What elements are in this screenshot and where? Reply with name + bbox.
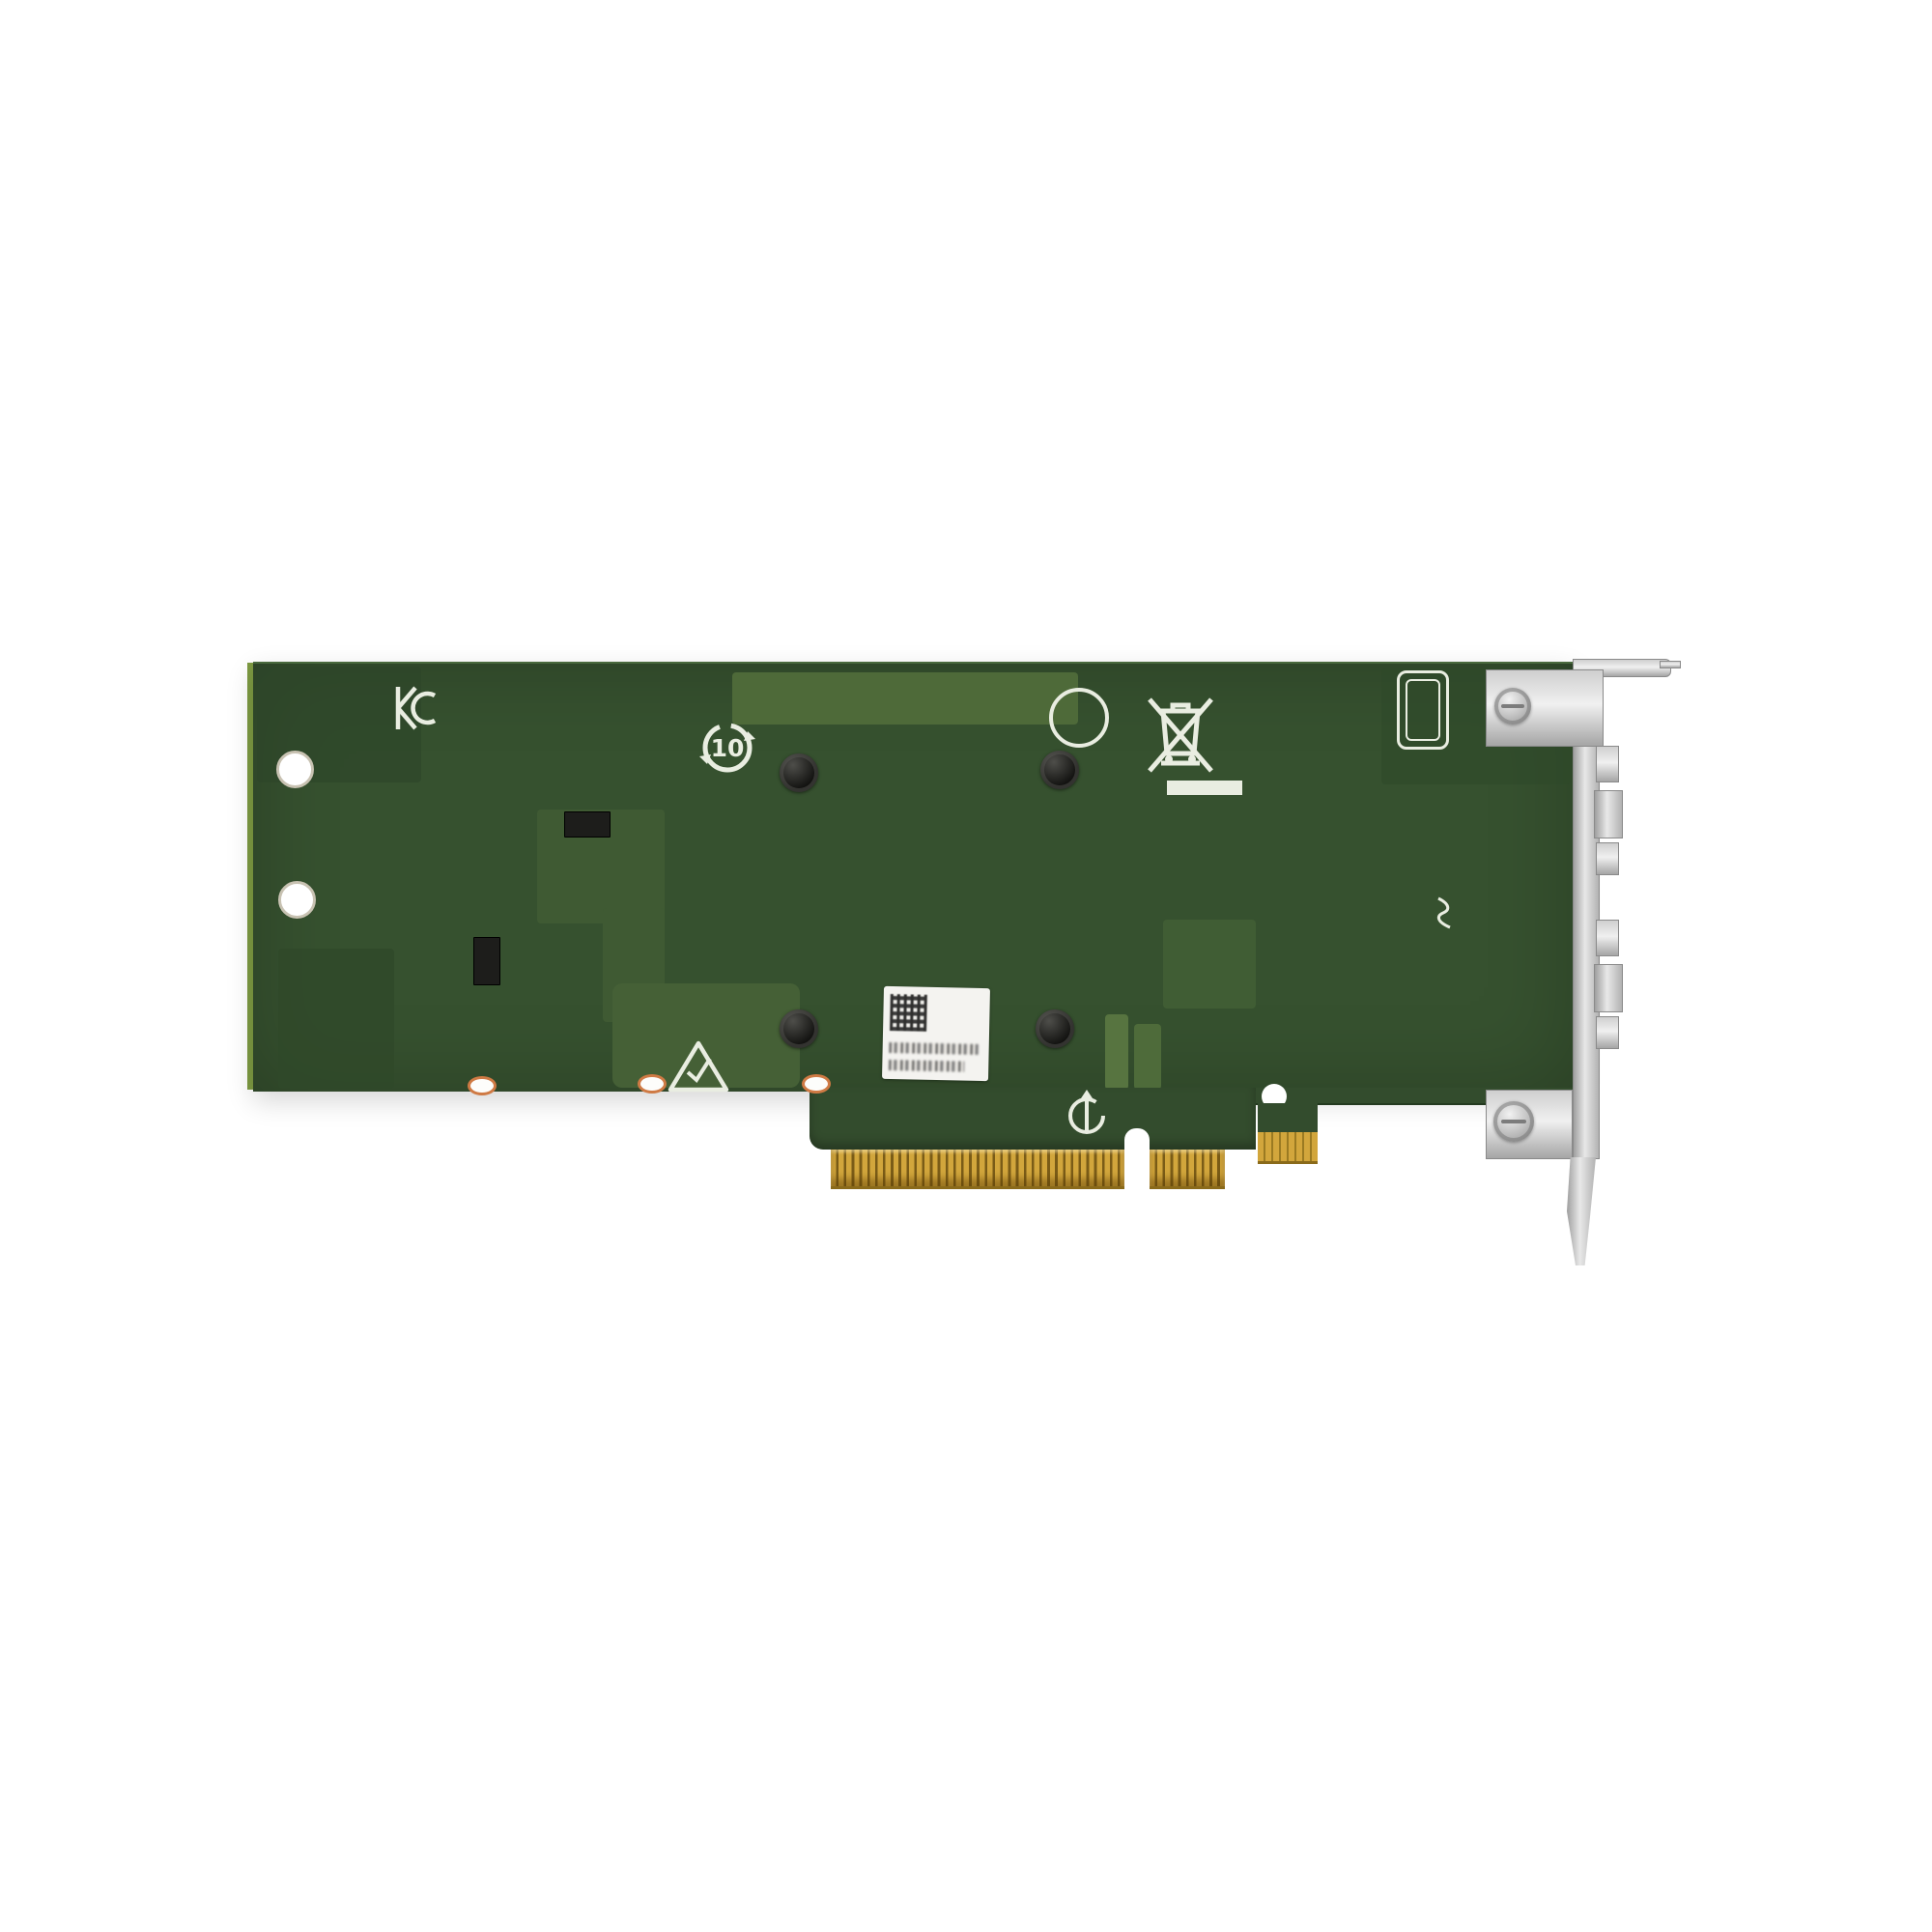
vcci-mark-icon: [1397, 670, 1449, 750]
epup-10-icon: 10: [699, 720, 755, 776]
sfp-port1-cage: [1594, 790, 1623, 838]
rubber-bumper: [1040, 751, 1079, 789]
sfp-port2-clip: [1596, 1016, 1619, 1049]
datamatrix-code: [890, 994, 927, 1032]
sfp-port2-clip: [1596, 920, 1619, 956]
bracket-screw-top: [1494, 688, 1531, 724]
weee-bin-icon: [1146, 694, 1215, 779]
chip-r503: [564, 811, 611, 838]
mounting-hole: [278, 881, 316, 919]
bracket-tail: [1567, 1157, 1596, 1265]
product-photo-network-card: 10: [0, 0, 1932, 1932]
pcie-fingers-short: [1150, 1150, 1225, 1189]
edge-slot-hole: [638, 1074, 667, 1094]
svg-text:10: 10: [711, 734, 745, 762]
pcie-tab-gold: [1258, 1132, 1318, 1164]
sfp-port1-clip: [1596, 842, 1619, 875]
kc-mark-icon: [390, 684, 440, 732]
broadcom-wave-icon: [1435, 896, 1456, 929]
shoulder-traces: [810, 1088, 1256, 1150]
chip-r501: [473, 937, 500, 985]
bracket-screw-bottom: [1493, 1101, 1534, 1142]
pcie-key-notch: [1124, 1128, 1150, 1188]
mac-label-sticker: [882, 986, 990, 1081]
blank-silkscreen-bar: [1167, 781, 1242, 795]
pb-free-icon: [1049, 688, 1109, 748]
pcie-fingers-long: [831, 1150, 1124, 1189]
rubber-bumper: [780, 753, 818, 792]
mounting-hole: [276, 751, 314, 788]
edge-slot-hole: [468, 1076, 497, 1095]
pcie-tab: [1258, 1103, 1318, 1134]
rubber-bumper: [1036, 1009, 1074, 1048]
sfp-port2-cage: [1594, 964, 1623, 1012]
rubber-bumper: [780, 1009, 818, 1048]
barcode-line1: [890, 1042, 979, 1055]
triangle-cert-icon: [667, 1039, 730, 1095]
recycle-arrow-icon: [1063, 1090, 1111, 1138]
sfp-port1-clip: [1596, 746, 1619, 782]
barcode-line2: [889, 1060, 964, 1072]
bracket-top-pin: [1660, 661, 1681, 668]
edge-slot-hole: [802, 1074, 831, 1094]
